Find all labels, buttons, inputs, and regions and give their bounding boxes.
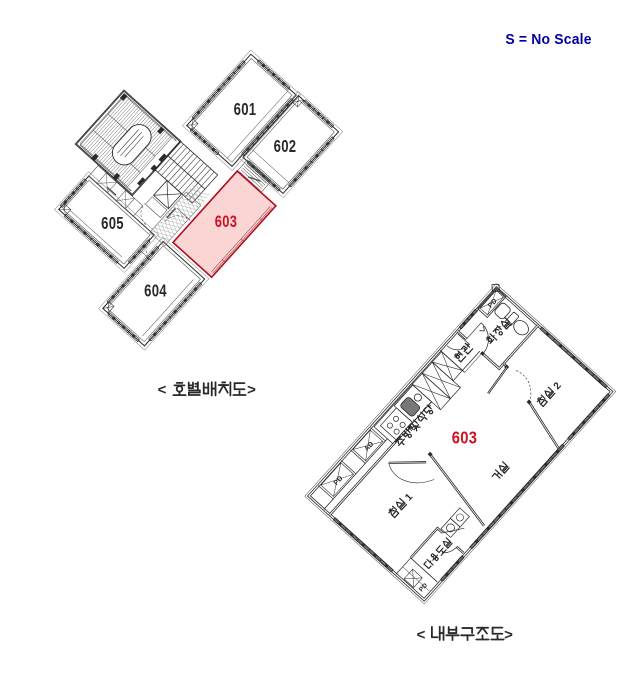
svg-text:>: > (504, 627, 513, 644)
svg-text:604: 604 (144, 282, 167, 301)
svg-text:<: < (158, 382, 167, 399)
svg-text:601: 601 (234, 100, 257, 119)
svg-text:602: 602 (274, 137, 297, 156)
svg-text:605: 605 (101, 214, 124, 233)
svg-text:S = No Scale: S = No Scale (505, 32, 591, 49)
svg-text:603: 603 (215, 212, 237, 231)
svg-text:603: 603 (452, 428, 478, 447)
svg-text:<: < (417, 627, 426, 644)
svg-text:>: > (247, 382, 256, 399)
